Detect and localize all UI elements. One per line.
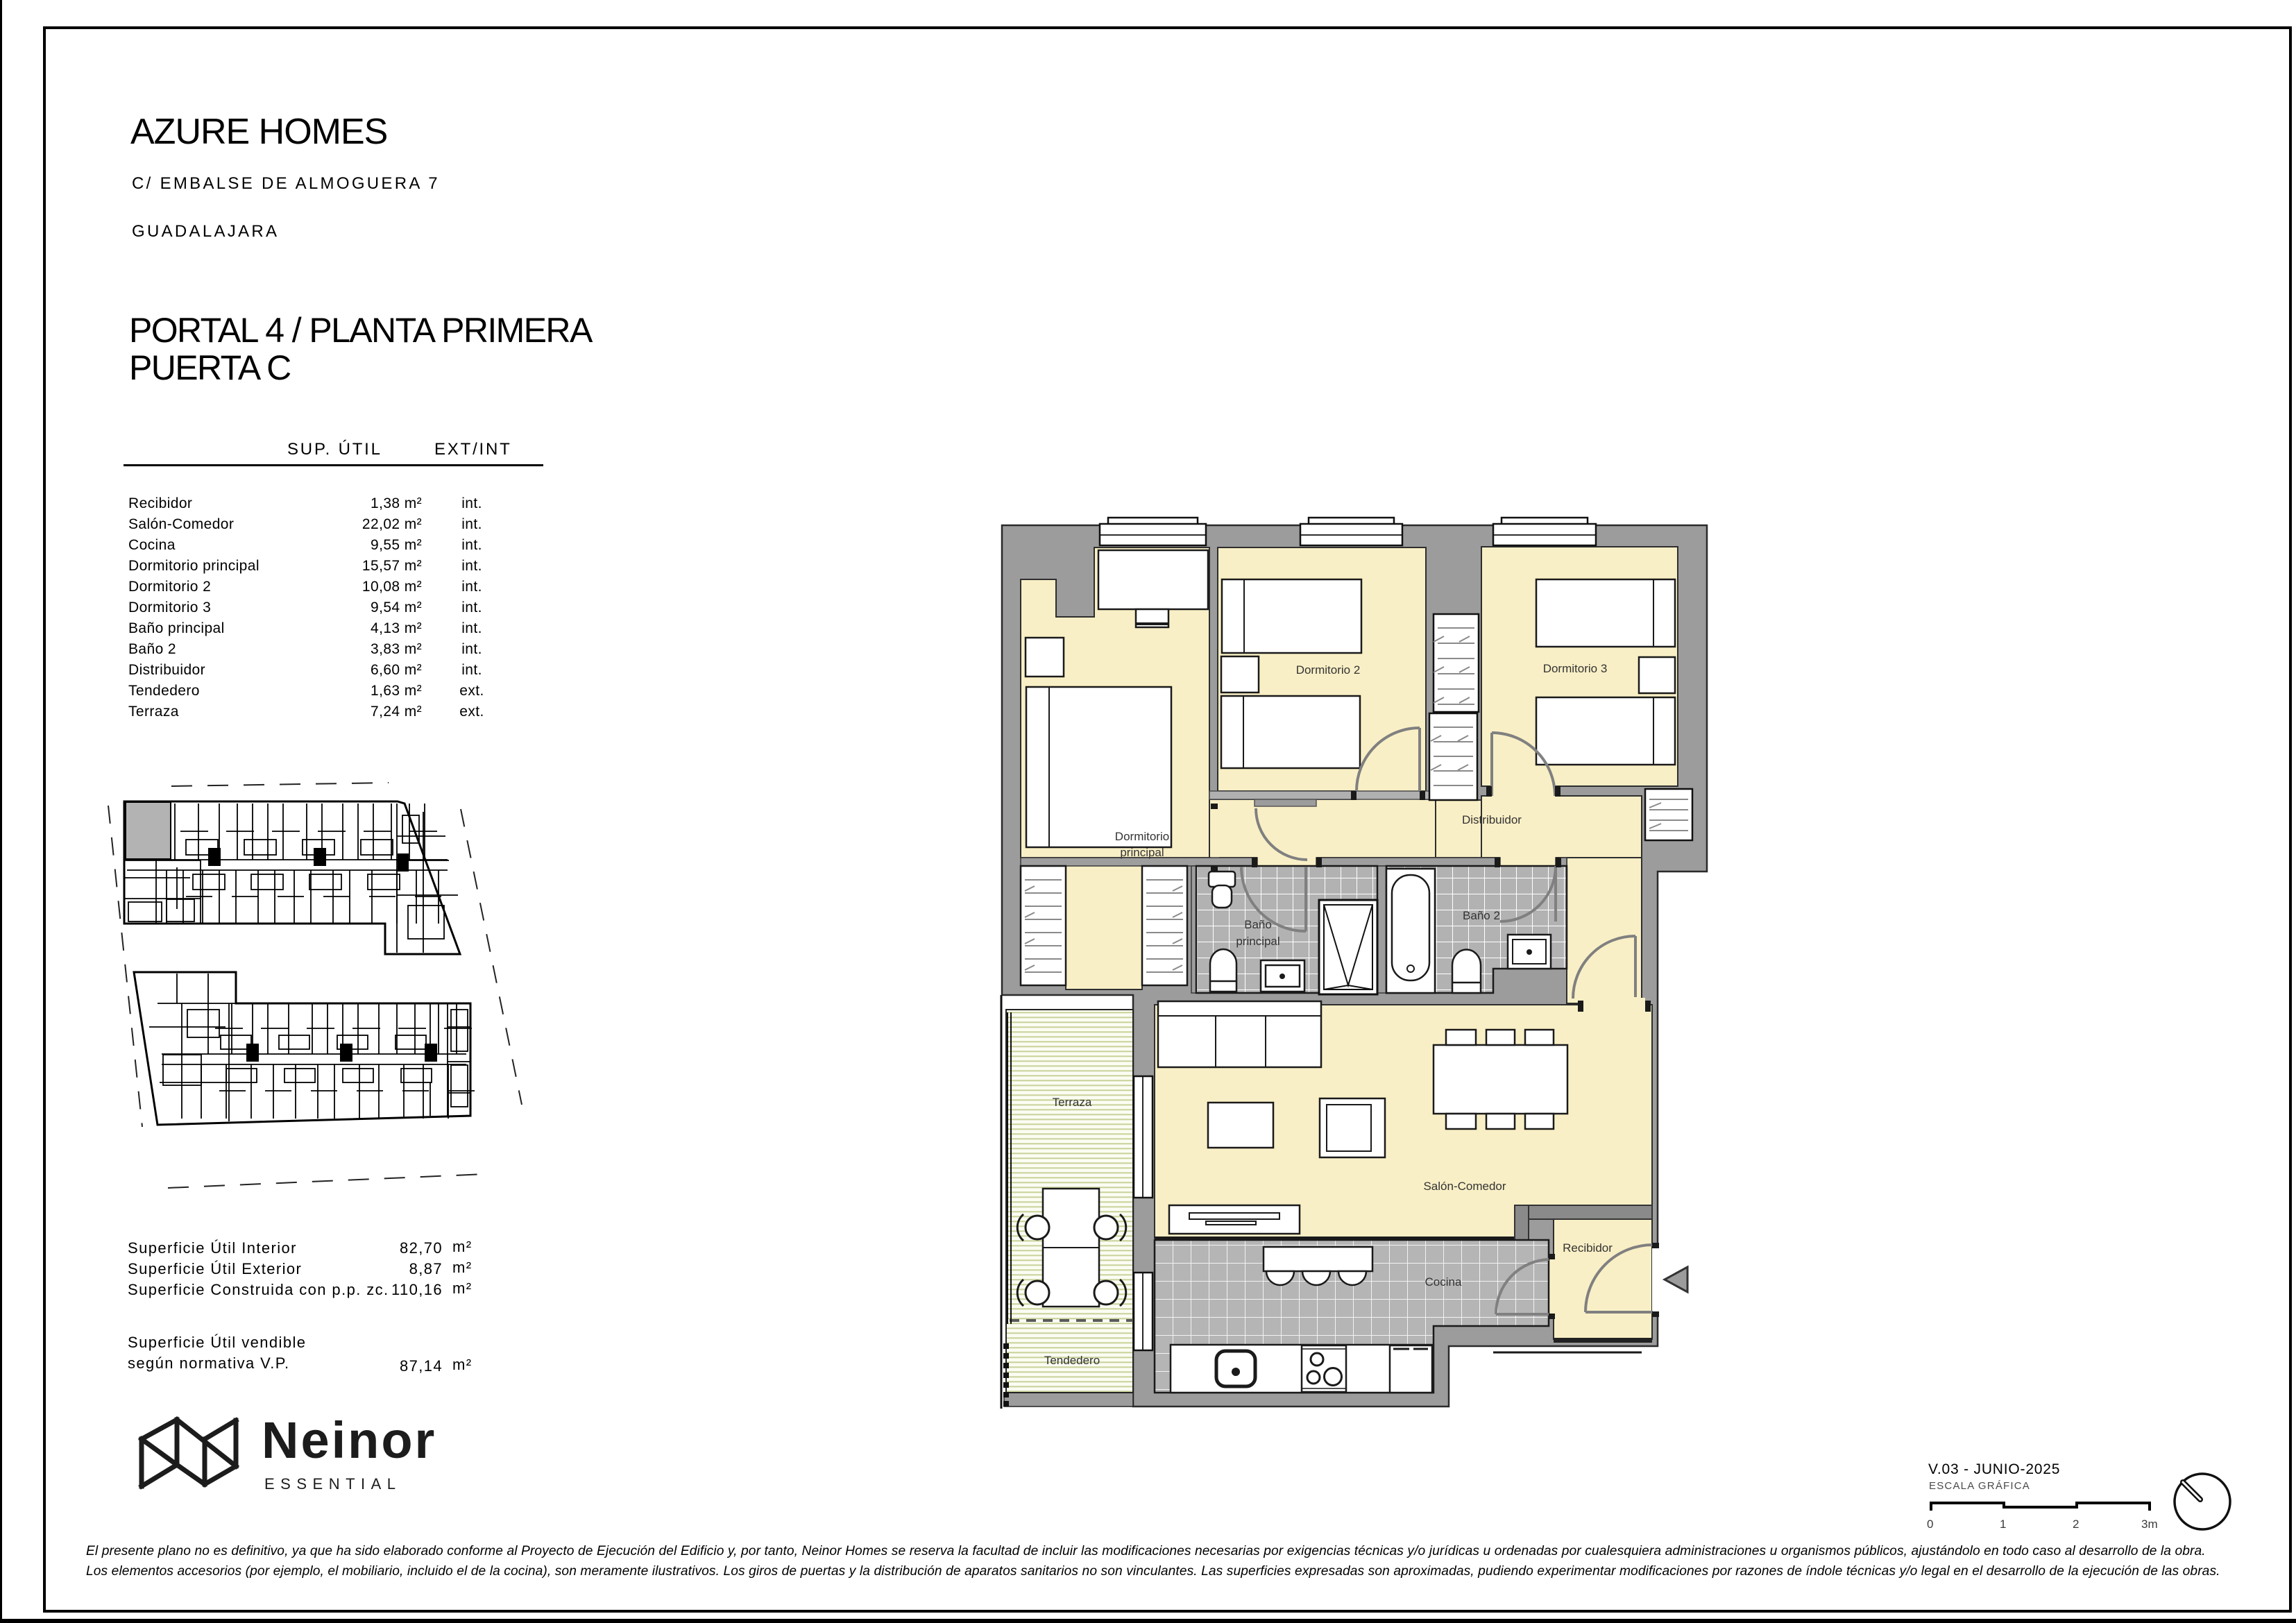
svg-text:Salón-Comedor: Salón-Comedor <box>1423 1180 1506 1193</box>
svg-text:Neinor: Neinor <box>262 1411 436 1469</box>
svg-text:Terraza: Terraza <box>1053 1096 1092 1109</box>
svg-text:Dormitorio: Dormitorio <box>1115 830 1169 843</box>
svg-text:ESSENTIAL: ESSENTIAL <box>264 1475 402 1493</box>
svg-text:Baño 2: Baño 2 <box>1463 909 1500 922</box>
svg-text:3m: 3m <box>2141 1518 2158 1531</box>
svg-text:Dormitorio 3: Dormitorio 3 <box>1543 662 1608 675</box>
svg-text:Baño: Baño <box>1244 918 1272 931</box>
svg-text:1: 1 <box>2000 1518 2006 1531</box>
svg-text:Tendedero: Tendedero <box>1044 1354 1100 1367</box>
svg-text:Recibidor: Recibidor <box>1563 1241 1613 1255</box>
svg-text:Cocina: Cocina <box>1425 1275 1462 1289</box>
svg-text:0: 0 <box>1927 1518 1933 1531</box>
svg-text:principal: principal <box>1236 935 1279 948</box>
svg-text:principal: principal <box>1120 846 1164 859</box>
svg-text:Dormitorio 2: Dormitorio 2 <box>1296 663 1361 677</box>
svg-text:Distribuidor: Distribuidor <box>1462 813 1522 826</box>
svg-text:2: 2 <box>2073 1518 2079 1531</box>
